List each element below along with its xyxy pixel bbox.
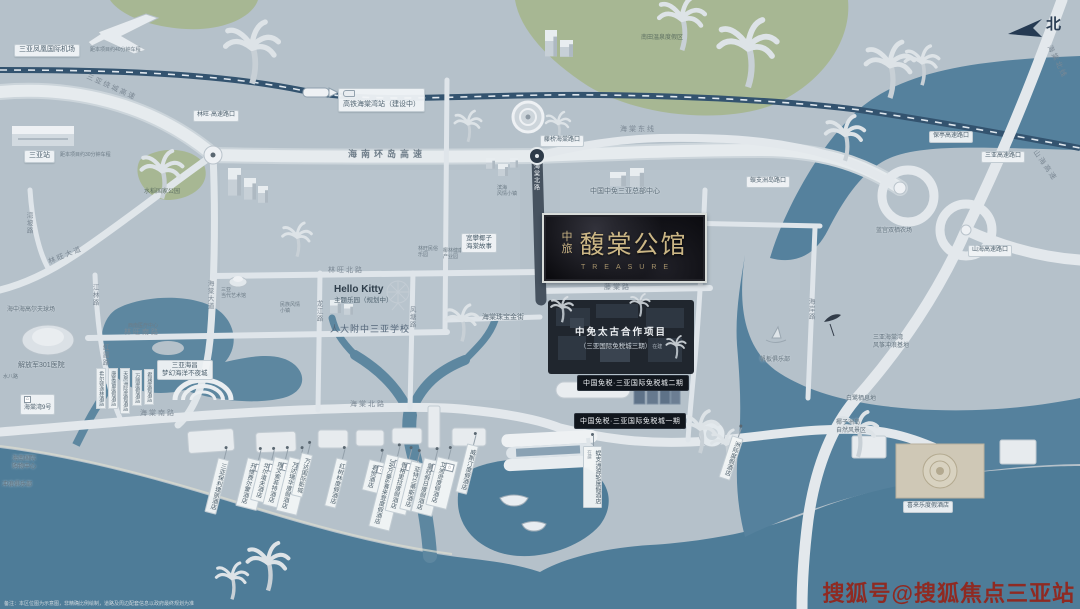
- coconut-story-label: 宽攀椰子海棠故事: [461, 233, 497, 253]
- haitang-north-line-label-text: 海棠北线: [1044, 44, 1068, 80]
- haitang-south-road-label: 海棠南路: [140, 410, 176, 419]
- haitang-avenue-label: 海棠大道: [205, 280, 213, 310]
- hellokitty-label-text: Hello Kitty: [334, 284, 393, 297]
- intl-shopping-label-text: 海南国际: [12, 456, 36, 464]
- cdf-hq-label: 中国中免三亚总部中心: [590, 188, 660, 197]
- haitang-north-line-label: 海棠北线: [1044, 44, 1068, 80]
- watermark: 搜狐号@搜狐焦点三亚站: [823, 576, 1075, 608]
- hospital-label: 解放军301医院: [18, 362, 65, 371]
- label-layer: 三亚凤凰国际机场距本项目约40分钟车程三亚站距本项目约30分钟车程高铁海棠湾站（…: [0, 0, 1080, 609]
- kite-base-label: 三亚海棠湾风筝冲浪基地: [873, 335, 909, 350]
- station-label-text: 三亚站: [29, 152, 50, 161]
- medical-center-label: 西南医疗中心: [128, 323, 158, 329]
- haitang-north-road-dark-label: 海棠北路: [531, 163, 539, 191]
- minzu-town-label-text: 小镇: [280, 308, 300, 314]
- haitang-north-road-dark-label-text: 海棠北路: [531, 163, 539, 191]
- golf-label: 海中海高尔夫球场: [7, 307, 55, 315]
- hotel-icon: ⌂: [24, 396, 31, 403]
- phase3-site-title: 中免太古合作项目: [548, 324, 694, 338]
- haian-road-label-text: 海岸路: [806, 298, 814, 321]
- train-icon: [343, 90, 355, 97]
- longjiang-road-label-text: 龙江路: [314, 300, 322, 323]
- surf-club-label: 冲浪俱乐部: [2, 482, 32, 490]
- raocheng-expressway-label: 三亚绕城高速: [85, 73, 138, 103]
- coconut-isle-label-text: 椰子洲岛: [836, 420, 866, 428]
- linwang-north-road-label-text: 林旺北路: [328, 267, 364, 276]
- yelin-park-label-text: 产业园: [443, 254, 463, 260]
- medical-center-label-text: 西南医疗中心: [128, 323, 158, 329]
- airport-distance-text: 距本项目约40分钟车程: [90, 47, 141, 53]
- yelin-park-label: 椰林健康产业园: [443, 248, 463, 261]
- hellokitty-label: Hello Kitty主题乐园（规划中）: [334, 284, 393, 305]
- haichang-label: 三亚海昌梦幻海洋不夜城: [157, 360, 213, 380]
- hotel-xilaile: 喜来乐度假酒店: [903, 501, 953, 513]
- shanhai-exit-label: 山海高速路口: [968, 245, 1012, 257]
- linwang-north-road-label: 林旺北路: [328, 267, 364, 276]
- tengtang-road-label-text: 藤棠路: [604, 284, 631, 293]
- haichang-label-text: 梦幻海洋不夜城: [162, 370, 208, 378]
- map-canvas: 三亚凤凰国际机场距本项目约40分钟车程三亚站距本项目约30分钟车程高铁海棠湾站（…: [0, 0, 1080, 609]
- hotel-rosewood-text: 三亚保利瑰丽酒店: [207, 462, 226, 510]
- tengqiao-exit-label: 藤桥海棠路口: [540, 135, 584, 147]
- project-logo-row: 中旅 馥棠公馆: [561, 225, 687, 261]
- hotel-hilton-doubletree: 希尔顿逸林酒店: [96, 368, 106, 409]
- hsr-station-label-text: 高铁海棠湾站（建设中）: [343, 101, 420, 110]
- hotel-conrad: 康莱德度假酒店: [108, 368, 118, 409]
- duty-free-phase1-label: 中国免税·三亚国际免税城一期: [574, 413, 686, 429]
- haitang-east-line-label: 海棠东线: [620, 126, 656, 135]
- haitang-south-road-label-text: 海棠南路: [140, 410, 176, 419]
- nantian-springs-label-text: 南田温泉度假区: [641, 35, 683, 43]
- art-museum-label: 三亚当代艺术馆: [221, 287, 246, 300]
- intl-shopping-label-text: 购物中心: [12, 464, 36, 472]
- school-label-text: 人大附中三亚学校: [330, 324, 410, 335]
- linwang-south-road-label: 林旺南路: [124, 329, 160, 338]
- windsurf-club-label-text: 帆板俱乐部: [760, 357, 790, 365]
- intl-shopping-label: 海南国际购物中心: [12, 456, 36, 471]
- hsr-station-label: 高铁海棠湾站（建设中）: [338, 88, 425, 112]
- hotel-westin: 威斯汀度假酒店: [455, 443, 478, 494]
- north-label-text: 北: [1046, 16, 1061, 35]
- project-logo-card: 中旅 馥棠公馆 TREASURE: [542, 213, 707, 283]
- hellokitty-label-text: 主题乐园（规划中）: [334, 297, 393, 305]
- hotel-westin-text: 威斯汀度假酒店: [458, 448, 475, 491]
- nantian-springs-label: 南田温泉度假区: [641, 35, 683, 43]
- hotel-conrad-text: 康莱德度假酒店: [110, 371, 116, 406]
- coconut-story-label-text: 宽攀椰子: [466, 235, 492, 243]
- hongxia-road-label: 红霞路: [100, 344, 108, 367]
- golf-label-text: 海中海高尔夫球场: [7, 307, 55, 315]
- haitang-avenue-label-text: 海棠大道: [205, 280, 213, 310]
- jewelry-street-label-text: 海棠珠宝金街: [482, 314, 524, 323]
- coconut-isle-label-text: 自然风景区: [836, 428, 866, 436]
- linwang-avenue-label: 林旺大道: [48, 246, 85, 268]
- kite-base-label-text: 三亚海棠湾: [873, 335, 909, 343]
- cdf-hq-label-text: 中国中免三亚总部中心: [590, 188, 660, 197]
- hotel-hilton-doubletree-text: 希尔顿逸林酒店: [98, 371, 104, 406]
- airport-label-text: 三亚凤凰国际机场: [19, 46, 75, 55]
- art-museum-label-text: 当代艺术馆: [221, 293, 246, 299]
- phase3-site-tag: 在建: [652, 344, 662, 350]
- folk-park-label-text: 乐园: [418, 252, 438, 258]
- hotel-mangrove-text: 红树林度假酒店: [327, 462, 344, 505]
- north-label: 北: [1046, 16, 1061, 35]
- linwang-exit-label-text: 林旺·高速路口: [197, 112, 235, 120]
- egret-habitat-label: 白鹭栖息地: [846, 396, 876, 404]
- wuzhizhou-exit-label-text: 蜈支洲岛路口: [750, 178, 786, 186]
- shanhai-exit-label-text: 山海高速路口: [972, 247, 1008, 255]
- wanpo-road-label-text: 湾坡路: [24, 212, 32, 235]
- station-distance-text: 距本项目约30分钟车程: [60, 152, 111, 158]
- binhai-town-label-text: 风情小镇: [497, 191, 517, 197]
- wuzhizhou-ferry-hotel-label: 蜈支洲渡轮度假酒店在建: [583, 446, 602, 508]
- project-name: 馥棠公馆: [579, 225, 687, 261]
- coconut-isle-label: 椰子洲岛自然风景区: [836, 420, 866, 435]
- station-distance: 距本项目约30分钟车程: [60, 152, 111, 158]
- tengqiao-exit-label-text: 藤桥海棠路口: [544, 137, 580, 145]
- longjiang-road-label: 龙江路: [314, 300, 322, 323]
- huandao-expressway-label-text: 海南环岛高速: [348, 149, 426, 160]
- huandao-expressway-label: 海南环岛高速: [348, 149, 426, 160]
- raocheng-expressway-label-text: 三亚绕城高速: [85, 73, 138, 103]
- hotel-renaissance: 万丽度假酒店: [132, 370, 142, 406]
- coconut-story-label-text: 海棠故事: [466, 243, 492, 251]
- duty-free-phase2-label: 中国免税·三亚国际免税城二期: [577, 375, 689, 391]
- wuzhizhou-exit-label: 蜈支洲岛路口: [746, 176, 790, 188]
- airport-label: 三亚凤凰国际机场: [14, 44, 80, 57]
- shuiba-road-label-text: 水八路: [3, 374, 18, 380]
- hotel-junlan: 君澜度假酒店: [144, 369, 154, 405]
- jewelry-street-label: 海棠珠宝金街: [482, 314, 524, 323]
- phase3-site-subtitle: （三亚国际免税城三期）在建: [548, 340, 694, 350]
- minzu-town-label: 民族风情小镇: [280, 302, 300, 315]
- kite-base-label-text: 风筝冲浪基地: [873, 343, 909, 351]
- linwang-south-road-label-text: 林旺南路: [124, 329, 160, 338]
- haitangwan9-label-text: 海棠湾9号: [24, 405, 51, 413]
- hotel-renaissance-text: 万丽度假酒店: [134, 373, 140, 403]
- haitang-north-road-label: 海棠北路: [350, 401, 386, 410]
- airport-distance: 距本项目约40分钟车程: [90, 47, 141, 53]
- surf-club-label-text: 冲浪俱乐部: [2, 482, 32, 490]
- haitangwan9-label: ⌂海棠湾9号: [20, 394, 55, 415]
- jianglin-road-label-text: 江林路: [90, 284, 98, 307]
- disclaimer-text: 备注：本区位图为示意图，非精确比例绘制，道路及周边配套信息以政府最终规划为准: [4, 600, 194, 607]
- hotel-intercontinental-west: 天房洲际度假酒店: [120, 368, 130, 414]
- wuzhizhou-ferry-hotel-label-text: 蜈支洲渡轮度假酒店: [593, 450, 601, 504]
- rice-park-label-text: 水稻国家公园: [144, 189, 180, 197]
- haichang-label-text: 三亚海昌: [162, 362, 208, 370]
- baoting-exit-label: 保亭高速路口: [929, 131, 973, 143]
- hospital-label-text: 解放军301医院: [18, 362, 65, 371]
- windsurf-club-label: 帆板俱乐部: [760, 357, 790, 365]
- shuiba-road-label: 水八路: [3, 374, 18, 380]
- rice-park-label: 水稻国家公园: [144, 189, 180, 197]
- hotel-rosewood: 三亚保利瑰丽酒店: [204, 457, 229, 514]
- baoting-exit-label-text: 保亭高速路口: [933, 133, 969, 141]
- folk-park-label: 林旺民俗乐园: [418, 246, 438, 259]
- wanpo-road-label: 湾坡路: [24, 212, 32, 235]
- hotel-junlan-text: 君澜度假酒店: [146, 372, 152, 402]
- linwang-avenue-label-text: 林旺大道: [48, 246, 85, 268]
- egret-habitat-label-text: 白鹭栖息地: [846, 396, 876, 404]
- hotel-intercontinental: 洲际度假酒店: [718, 435, 743, 480]
- jianglin-road-label: 江林路: [90, 284, 98, 307]
- project-brand: 中旅: [561, 231, 574, 255]
- farm-label-text: 蓝宫双栖农场: [876, 228, 912, 236]
- station-label: 三亚站: [24, 150, 55, 163]
- school-label: 人大附中三亚学校: [330, 324, 410, 335]
- phase3-site-label: 中免太古合作项目 （三亚国际免税城三期）在建: [548, 324, 694, 350]
- farm-label: 蓝宫双栖农场: [876, 228, 912, 236]
- tengtang-road-label: 藤棠路: [604, 284, 631, 293]
- phase3-site-subtitle-text: （三亚国际免税城三期）: [580, 343, 652, 350]
- wuzhizhou-ferry-hotel-label-suffix: 在建: [588, 450, 593, 459]
- haitang-north-road-label-text: 海棠北路: [350, 401, 386, 410]
- hotel-xilaile-text: 喜来乐度假酒店: [907, 503, 949, 511]
- sanya-exit-label-text: 三亚高速路口: [985, 153, 1021, 161]
- hotel-grand-hyatt-text: 君悦酒店: [364, 463, 377, 488]
- project-name-english: TREASURE: [574, 264, 675, 271]
- sanya-exit-label: 三亚高速路口: [981, 151, 1025, 163]
- haian-road-label: 海岸路: [806, 298, 814, 321]
- linwang-exit-label: 林旺·高速路口: [193, 110, 239, 122]
- hongxia-road-label-text: 红霞路: [100, 344, 108, 367]
- hotel-mangrove: 红树林度假酒店: [324, 457, 347, 508]
- haitang-east-line-label-text: 海棠东线: [620, 126, 656, 135]
- hotel-intercontinental-text: 洲际度假酒店: [722, 440, 740, 477]
- shanhai-expressway-label-text: 山海高速: [1030, 149, 1058, 184]
- shanhai-expressway-label: 山海高速: [1030, 149, 1058, 184]
- binhai-town-label: 滨海风情小镇: [497, 185, 517, 198]
- hotel-intercontinental-west-text: 天房洲际度假酒店: [122, 371, 128, 411]
